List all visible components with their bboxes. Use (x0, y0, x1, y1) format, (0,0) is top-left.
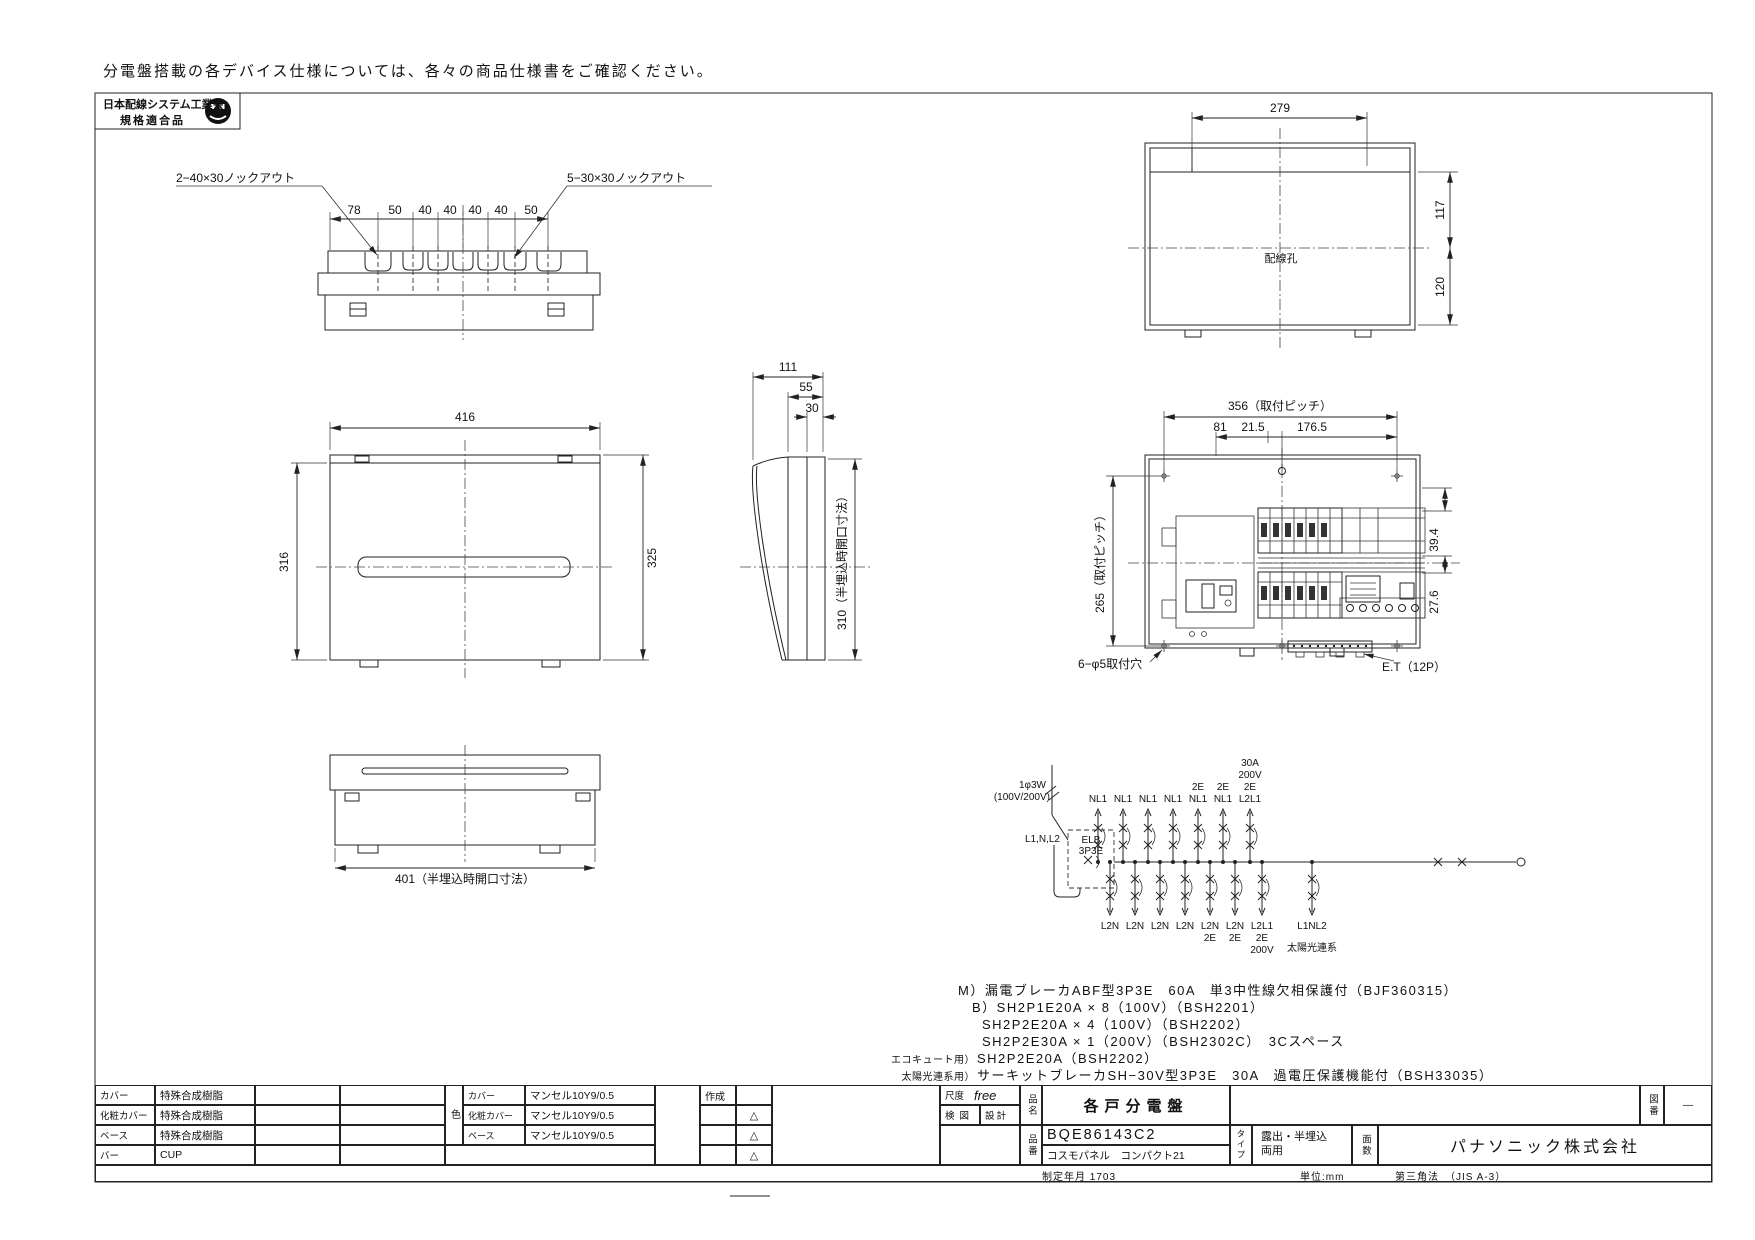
note-solar-prefix: 太陽光連系用） (902, 1068, 976, 1083)
color-header: 色 (445, 1085, 463, 1145)
branch-label: 2E (1217, 782, 1230, 793)
dim-401-opening: 401（半埋込時開口寸法） (395, 872, 535, 886)
elb-label-1: ELB (1082, 835, 1101, 846)
dim-50a: 50 (388, 203, 402, 217)
branch-label: L2N (1201, 921, 1219, 932)
header-note: 分電盤搭載の各デバイス仕様については、各々の商品仕様書をご確認ください。 (103, 60, 714, 81)
main-breaker-elb (1162, 516, 1254, 637)
color-value: マンセル10Y9/0.5 (525, 1105, 655, 1125)
branch-label: L2L1 (1239, 794, 1262, 805)
company-name: パナソニック株式会社 (1378, 1125, 1712, 1165)
empty-cell (445, 1145, 655, 1165)
branch-label: 200V (1238, 770, 1262, 781)
material-label: ベース (95, 1125, 155, 1145)
drawing-sheet: 2−40×30ノックアウト 5−30×30ノックアウト 78 50 40 40 … (0, 0, 1755, 1240)
material-value: CUP (155, 1145, 255, 1165)
material-label: カバー (95, 1085, 155, 1105)
branch-label: 2E (1256, 933, 1269, 944)
revision-mark: △ (736, 1145, 772, 1165)
sheet-frame (95, 93, 1712, 1196)
empty-cell (255, 1085, 340, 1105)
et-label: E.T（12P） (1382, 660, 1446, 674)
empty-cell (655, 1085, 700, 1165)
dim-40b: 40 (443, 203, 457, 217)
dim-81: 81 (1213, 420, 1227, 434)
solar-label: 太陽光連系 (1287, 941, 1337, 954)
bottom-view: 401（半埋込時開口寸法） (330, 745, 600, 886)
empty-cell (700, 1125, 736, 1145)
branch-breakers (1258, 508, 1425, 618)
dim-27-6: 27.6 (1427, 590, 1441, 614)
product-name: 各戸分電盤 (1042, 1085, 1230, 1125)
empty-cell (340, 1085, 445, 1105)
faces-label: 面数 (1352, 1125, 1378, 1165)
revision-mark: △ (736, 1125, 772, 1145)
scale-cell: 尺度 free (940, 1085, 1020, 1105)
color-value: マンセル10Y9/0.5 (525, 1085, 655, 1105)
dim-120: 120 (1433, 277, 1447, 297)
empty-cell (340, 1125, 445, 1145)
side-view: 111 55 30 310（半埋込時開口寸法） (740, 360, 872, 660)
branch-label: NL1 (1214, 794, 1233, 805)
type-label: タイプ (1230, 1125, 1252, 1165)
dim-117: 117 (1433, 200, 1447, 219)
branch-label: L2N (1151, 921, 1169, 932)
product-number-label: 品番 (1020, 1125, 1042, 1165)
dim-39-4: 39.4 (1427, 528, 1441, 552)
dim-40d: 40 (494, 203, 508, 217)
branch-label: L2N (1226, 921, 1244, 932)
empty-cell (340, 1105, 445, 1125)
empty-cell (700, 1105, 736, 1125)
note-eco-prefix: エコキュート用） (891, 1051, 975, 1066)
color-part: 化粧カバー (463, 1105, 525, 1125)
circuit-diagram: 1φ3W (100V/200V) L1,N,L2 ELB 3P3E NL1 NL… (994, 758, 1525, 956)
branch-label: 2E (1244, 782, 1257, 793)
front-view: 416 316 325 (277, 410, 659, 678)
panel-view: 356（取付ピッチ） 81 21.5 176.5 265（取付ピッチ） 39.4… (1078, 399, 1460, 674)
jewa-logo-line2: 規格適合品 (120, 112, 185, 128)
color-value: マンセル10Y9/0.5 (525, 1125, 655, 1145)
dim-265-pitch: 265（取付ピッチ） (1093, 509, 1107, 613)
dim-176-5: 176.5 (1297, 420, 1327, 434)
branch-label: NL1 (1164, 794, 1183, 805)
mounting-holes-label: 6−φ5取付穴 (1078, 656, 1142, 671)
dim-316: 316 (277, 552, 291, 572)
neutral-loop (1054, 845, 1080, 897)
knockout-view: 2−40×30ノックアウト 5−30×30ノックアウト 78 50 40 40 … (176, 171, 712, 340)
revision-mark: △ (736, 1105, 772, 1125)
type-value-2: 両用 (1261, 1145, 1283, 1159)
branch-label: L2N (1176, 921, 1194, 932)
dim-40c: 40 (468, 203, 482, 217)
unit-label: 単位:mm (1300, 1168, 1344, 1183)
dim-325: 325 (645, 548, 659, 568)
branch-label: NL1 (1189, 794, 1208, 805)
solar-top-label: L1NL2 (1297, 921, 1327, 932)
scale-value: free (974, 1088, 996, 1103)
jewa-logo-line1: 日本配線システム工業会 (103, 96, 224, 112)
drawing-no-value: — (1664, 1085, 1712, 1125)
check-label: 検図 (940, 1105, 980, 1125)
wiring-hole-label: 配線孔 (1265, 251, 1298, 265)
branch-label: 2E (1192, 782, 1205, 793)
dim-21-5: 21.5 (1241, 420, 1265, 434)
empty-cell (736, 1085, 772, 1105)
empty-cell (772, 1085, 940, 1165)
drawing-linework: 2−40×30ノックアウト 5−30×30ノックアウト 78 50 40 40 … (0, 0, 1755, 1240)
empty-cell (340, 1145, 445, 1165)
empty-cell (700, 1145, 736, 1165)
color-part: ベース (463, 1125, 525, 1145)
dim-40a: 40 (418, 203, 432, 217)
branch-label: 200V (1250, 945, 1274, 956)
knockout-leader-left: 2−40×30ノックアウト (176, 171, 295, 185)
product-number: BQE86143C2 (1042, 1125, 1230, 1145)
color-part: カバー (463, 1085, 525, 1105)
phase-label: L1,N,L2 (1025, 834, 1060, 845)
dim-310-opening: 310（半埋込時開口寸法） (835, 490, 849, 630)
material-label: バー (95, 1145, 155, 1165)
solar-terminal (1517, 858, 1525, 866)
design-label: 設計 (980, 1105, 1020, 1125)
branch-label: NL1 (1089, 794, 1108, 805)
branch-label: NL1 (1114, 794, 1133, 805)
empty-cell (255, 1105, 340, 1125)
note-solar: サーキットブレーカSH−30V型3P3E 30A 過電圧保護機能付（BSH330… (977, 1065, 1493, 1084)
back-view: 279 117 120 配線孔 (1128, 101, 1458, 348)
source-label-1: 1φ3W (1019, 780, 1047, 791)
established-date: 制定年月 1703 (1042, 1168, 1116, 1183)
created-label: 作成 (700, 1085, 736, 1105)
source-label-2: (100V/200V) (994, 792, 1050, 803)
elb-label-2: 3P3E (1079, 846, 1104, 857)
material-value: 特殊合成樹脂 (155, 1125, 255, 1145)
dim-356-pitch: 356（取付ピッチ） (1228, 399, 1332, 413)
projection-label: 第三角法 （JIS A-3） (1395, 1168, 1506, 1183)
dim-30: 30 (805, 401, 819, 415)
branch-label: L2N (1126, 921, 1144, 932)
empty-cell (255, 1145, 340, 1165)
empty-cell (255, 1125, 340, 1145)
series-name: コスモパネル コンパクト21 (1042, 1145, 1230, 1165)
product-name-label: 品名 (1020, 1085, 1042, 1125)
knockout-leader-right: 5−30×30ノックアウト (567, 171, 686, 185)
branch-label: L2N (1101, 921, 1119, 932)
branch-label: 2E (1229, 933, 1242, 944)
dim-279: 279 (1270, 101, 1290, 115)
branch-label: 30A (1241, 758, 1259, 769)
empty-cell (940, 1125, 1020, 1165)
dim-55: 55 (799, 380, 813, 394)
branch-label: 2E (1204, 933, 1217, 944)
dim-78: 78 (347, 203, 361, 217)
dim-50b: 50 (524, 203, 538, 217)
dim-416: 416 (455, 410, 475, 424)
branch-label: NL1 (1139, 794, 1158, 805)
dim-111: 111 (779, 360, 798, 374)
material-value: 特殊合成樹脂 (155, 1085, 255, 1105)
type-value-1: 露出・半埋込 (1261, 1131, 1327, 1145)
empty-cell (1230, 1085, 1640, 1125)
branch-label: L2L1 (1251, 921, 1274, 932)
material-value: 特殊合成樹脂 (155, 1105, 255, 1125)
scale-label: 尺度 (945, 1088, 964, 1102)
drawing-no-label: 図番 (1640, 1085, 1664, 1125)
material-label: 化粧カバー (95, 1105, 155, 1125)
